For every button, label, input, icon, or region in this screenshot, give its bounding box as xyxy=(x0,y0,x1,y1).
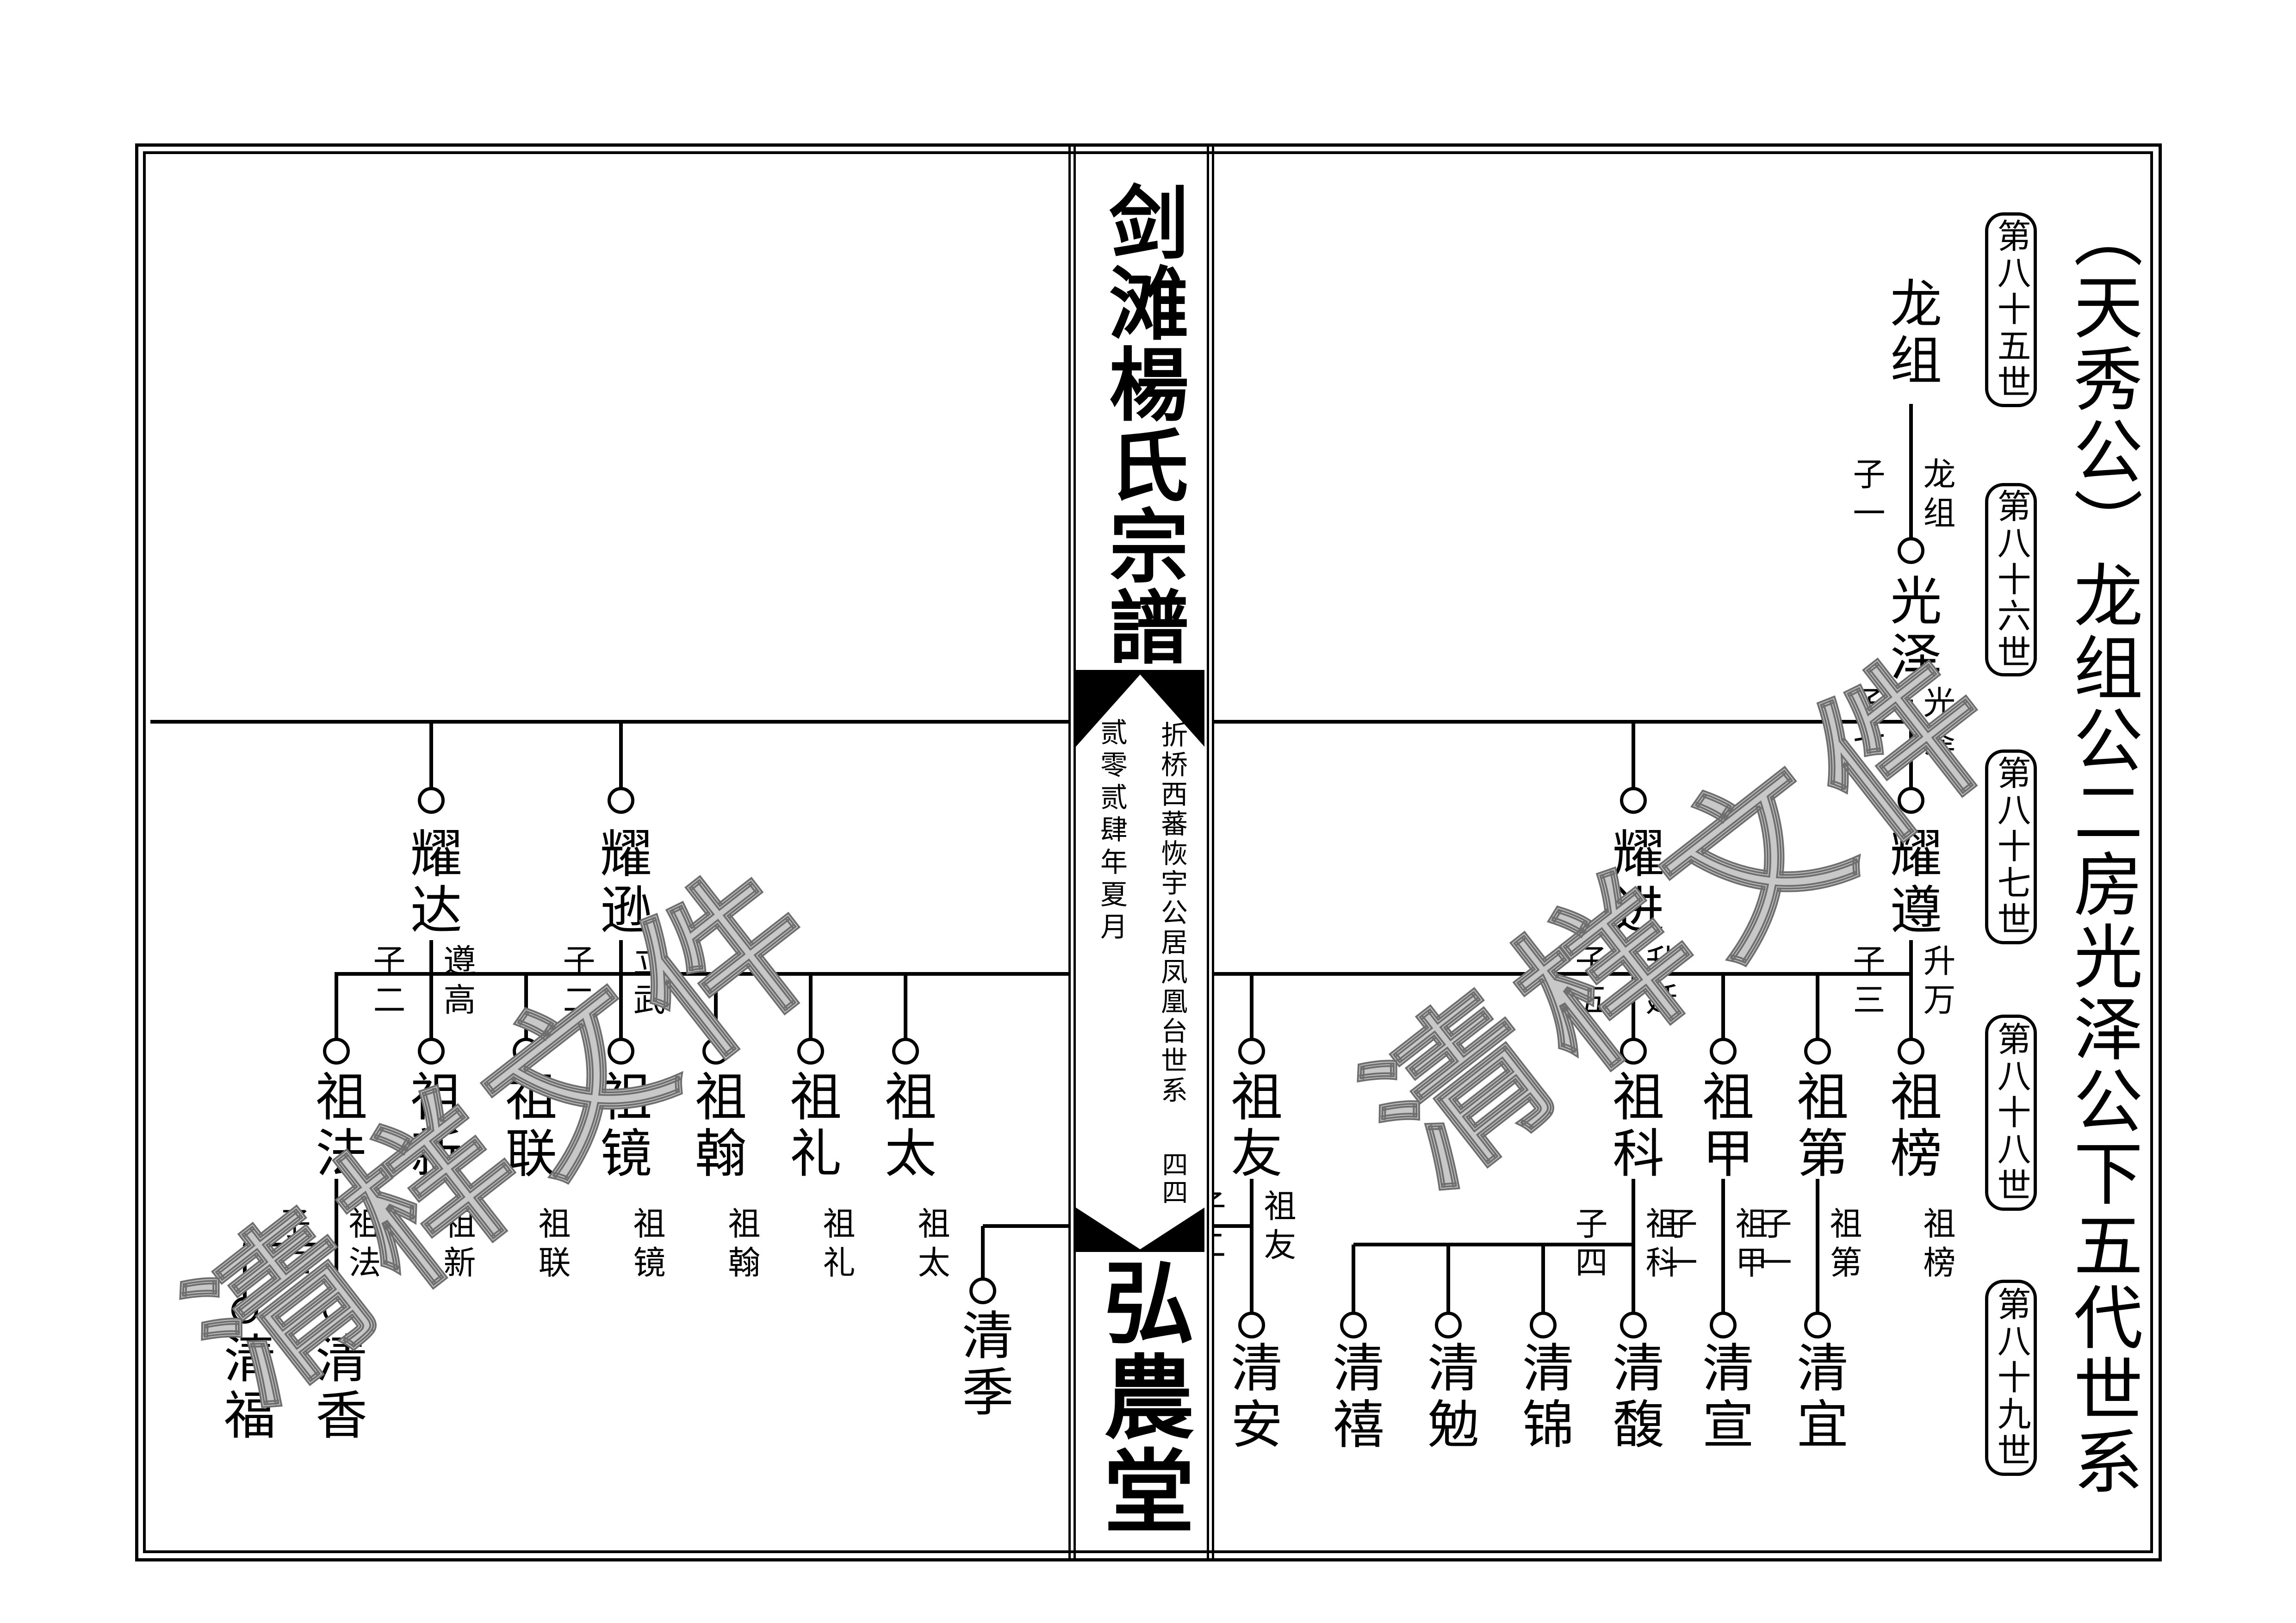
generation-label: 第八十九世 xyxy=(1985,1280,2037,1476)
generation-label: 第八十六世 xyxy=(1985,483,2037,676)
generation-label-text: 第八十八世 xyxy=(1992,1022,2029,1204)
generation-label-text: 第八十七世 xyxy=(1992,756,2029,938)
genealogy-page: 龙组光泽耀达耀逊耀进耀遵祖法祖新祖联祖镜祖翰祖礼祖太祖友祖科祖甲祖第祖榜清福清香… xyxy=(0,0,2296,1623)
generation-label: 第八十五世 xyxy=(1985,212,2037,407)
generation-label-text: 第八十九世 xyxy=(1992,1287,2029,1469)
generation-label: 第八十八世 xyxy=(1985,1015,2037,1211)
page-title: （天秀公）龙组公二房光泽公下五代世系 xyxy=(2062,199,2141,1498)
generation-label-text: 第八十六世 xyxy=(1992,489,2029,671)
generation-label: 第八十七世 xyxy=(1985,750,2037,944)
generation-label-text: 第八十五世 xyxy=(1992,218,2029,401)
